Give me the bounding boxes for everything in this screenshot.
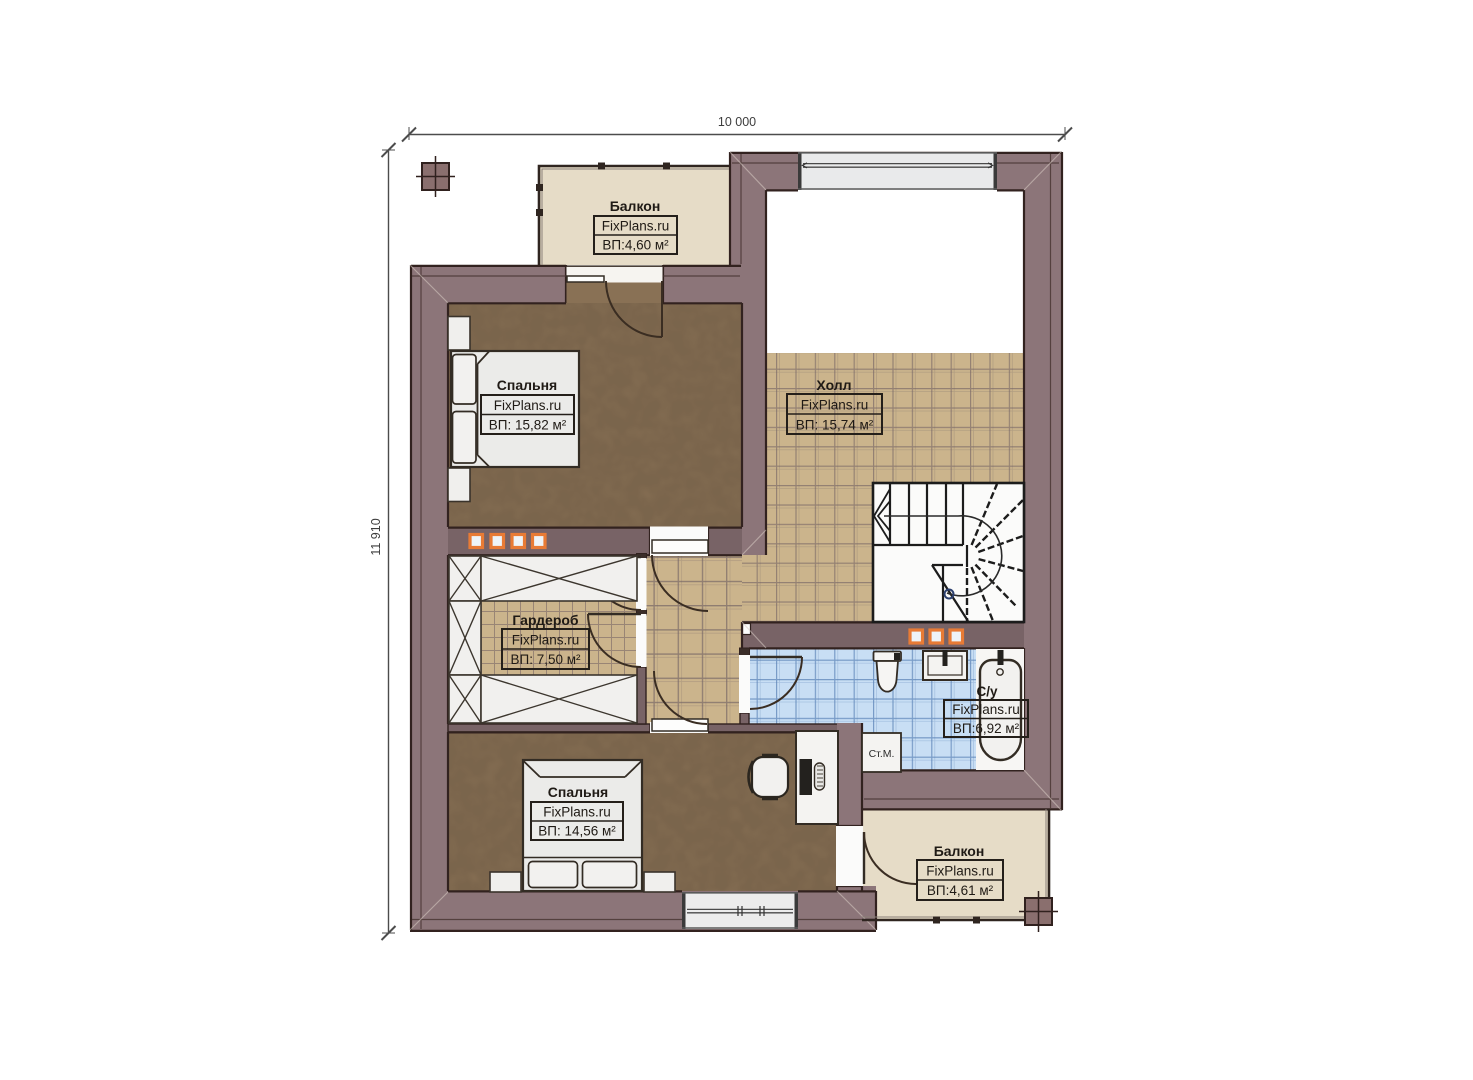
svg-text:ВП:4,61 м²: ВП:4,61 м² [927,883,994,898]
svg-text:ВП: 14,56 м²: ВП: 14,56 м² [538,824,616,839]
svg-text:Балкон: Балкон [610,198,661,214]
svg-text:ВП: 15,74 м²: ВП: 15,74 м² [796,418,874,433]
svg-text:Гардероб: Гардероб [512,612,579,628]
svg-text:FixPlans.ru: FixPlans.ru [512,633,580,648]
svg-text:ВП:6,92 м²: ВП:6,92 м² [953,721,1020,736]
svg-text:Холл: Холл [816,377,851,393]
svg-text:ВП: 7,50 м²: ВП: 7,50 м² [510,652,581,667]
svg-text:FixPlans.ru: FixPlans.ru [602,219,670,234]
svg-text:FixPlans.ru: FixPlans.ru [952,702,1020,717]
svg-text:FixPlans.ru: FixPlans.ru [543,805,611,820]
svg-text:FixPlans.ru: FixPlans.ru [926,864,994,879]
svg-text:FixPlans.ru: FixPlans.ru [494,398,562,413]
svg-text:Ст.М.: Ст.М. [869,748,895,760]
svg-text:ВП:4,60 м²: ВП:4,60 м² [602,238,669,253]
svg-text:11 910: 11 910 [369,518,383,555]
svg-text:Спальня: Спальня [548,784,608,800]
svg-text:10 000: 10 000 [718,115,756,129]
svg-text:FixPlans.ru: FixPlans.ru [801,398,869,413]
svg-text:С/у: С/у [976,684,998,699]
svg-text:Балкон: Балкон [934,843,985,859]
svg-text:Спальня: Спальня [497,377,557,393]
svg-text:ВП: 15,82 м²: ВП: 15,82 м² [489,418,567,433]
